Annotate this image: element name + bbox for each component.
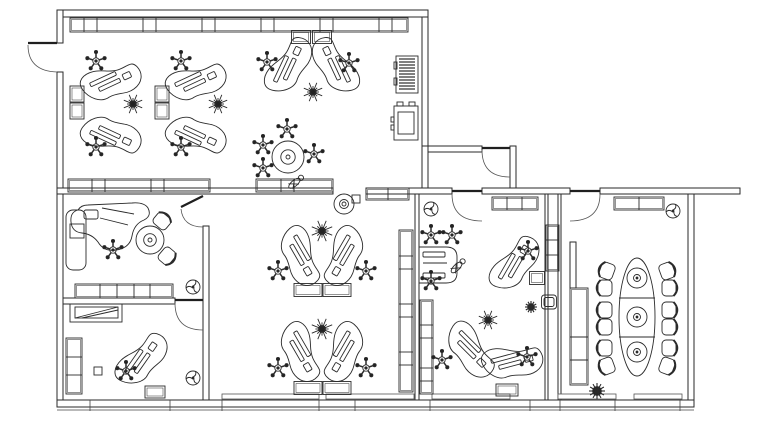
- task-chair: [268, 260, 288, 280]
- task-chair: [116, 360, 136, 380]
- desk-pedestal: [155, 103, 169, 119]
- desk-pedestal: [496, 384, 518, 396]
- task-chair: [257, 51, 277, 71]
- ceiling-fan-symbol: [186, 280, 200, 294]
- workstation-desk: [479, 337, 546, 385]
- desk-pedestal: [323, 284, 351, 297]
- plant: [209, 95, 227, 113]
- wall-box: [94, 367, 102, 375]
- conference-door: [570, 191, 600, 221]
- side-chair: [662, 280, 677, 296]
- side-chair: [156, 245, 178, 267]
- wall-box: [352, 195, 360, 203]
- workstation-desk: [162, 108, 231, 164]
- plant: [479, 311, 497, 329]
- vestibule-office-door: [452, 191, 482, 221]
- side-chair: [597, 319, 612, 335]
- round-table: [136, 226, 164, 254]
- task-chair: [356, 260, 376, 280]
- task-chair: [86, 50, 106, 70]
- task-chair: [517, 346, 537, 366]
- printer-stand: [542, 295, 557, 309]
- cabinet-row: [66, 338, 82, 394]
- side-chair: [658, 356, 678, 376]
- plant: [312, 221, 332, 241]
- desk-pedestal: [70, 103, 84, 119]
- desk-pedestal: [294, 284, 322, 297]
- side-chair: [597, 280, 612, 296]
- task-chair: [442, 224, 462, 244]
- wall: [203, 226, 209, 400]
- side-chair: [658, 261, 678, 281]
- side-chair: [662, 319, 677, 335]
- floor-plan-canvas: [0, 0, 768, 424]
- cabinet-row: [75, 284, 173, 298]
- side-chair: [662, 302, 677, 318]
- window-sill: [634, 394, 682, 399]
- plant: [304, 83, 322, 101]
- cabinet-row: [420, 300, 433, 394]
- cabinet-row: [570, 288, 588, 385]
- cabinets-layer: [66, 18, 664, 394]
- workstation-desk: [438, 317, 505, 384]
- ceiling-fan-symbol: [666, 204, 680, 218]
- wall: [57, 10, 428, 17]
- wall: [688, 194, 694, 407]
- side-chair: [597, 302, 612, 318]
- plant: [525, 301, 537, 313]
- wall: [63, 298, 175, 304]
- wall: [57, 400, 694, 407]
- task-chair: [277, 118, 297, 137]
- cabinet-row: [399, 230, 413, 392]
- desk-pedestal: [292, 31, 311, 44]
- task-chair: [253, 157, 273, 177]
- task-chair: [356, 357, 376, 377]
- wall: [570, 242, 576, 288]
- copier: [391, 102, 418, 140]
- wall: [57, 10, 63, 43]
- workstation-desk: [77, 108, 146, 164]
- cabinet-row: [614, 197, 664, 210]
- middle-left-room-door: [181, 196, 203, 227]
- wall: [422, 146, 428, 194]
- window-sill: [432, 394, 510, 399]
- task-chair: [304, 143, 324, 163]
- plant: [124, 95, 142, 113]
- cabinet-row: [492, 197, 538, 210]
- technical-shelf: [394, 56, 418, 93]
- desk-return: [66, 210, 86, 270]
- task-chair: [432, 349, 452, 369]
- lower-left-room-door: [175, 300, 203, 330]
- side-chair: [662, 340, 677, 356]
- floor-plan-page: [0, 0, 768, 424]
- person-symbol: [449, 257, 467, 275]
- task-chair: [171, 50, 191, 70]
- round-table: [334, 194, 354, 214]
- ceiling-fan-symbol: [424, 202, 438, 216]
- equipment-table: [70, 304, 122, 322]
- side-chair: [597, 340, 612, 356]
- task-chair: [253, 134, 273, 154]
- cabinet-row: [70, 18, 408, 32]
- wall: [510, 146, 516, 194]
- ceiling-fan-symbol: [186, 371, 200, 385]
- task-chair: [421, 224, 441, 244]
- plant: [312, 319, 332, 339]
- wall: [422, 146, 482, 152]
- reception-desk: [71, 203, 149, 250]
- desk-pedestal: [70, 86, 84, 102]
- wall: [482, 188, 570, 194]
- exterior-door-left: [28, 43, 57, 72]
- desk-pedestal: [155, 86, 169, 102]
- wall: [422, 17, 428, 146]
- desk-pedestal: [530, 272, 545, 285]
- desk-pedestal: [294, 382, 322, 395]
- task-chair: [268, 357, 288, 377]
- side-chair: [151, 210, 173, 232]
- workstation-desk: [485, 229, 544, 298]
- side-chair: [597, 261, 617, 281]
- conference-table: [619, 258, 655, 376]
- side-chair: [597, 356, 617, 376]
- workstation-desk: [111, 325, 173, 394]
- desk-pedestal: [145, 386, 165, 398]
- desk-pedestal: [313, 31, 332, 44]
- round-table: [272, 141, 304, 173]
- wall: [57, 188, 333, 194]
- entry-door: [482, 148, 510, 177]
- wall: [57, 72, 63, 407]
- wall: [600, 188, 740, 194]
- desk-pedestal: [323, 382, 351, 395]
- window-sill: [558, 394, 616, 399]
- wall: [415, 194, 419, 400]
